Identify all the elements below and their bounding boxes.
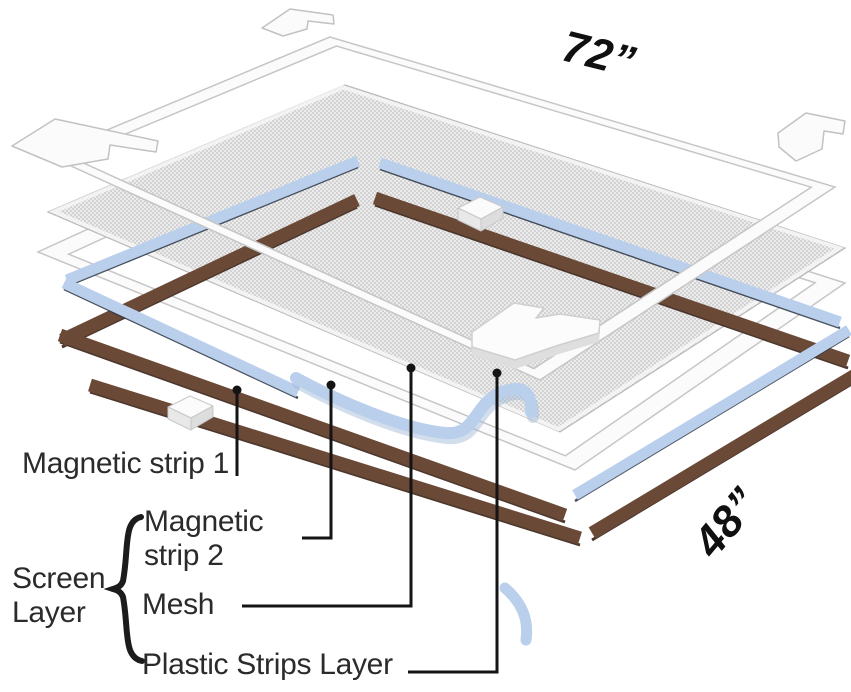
corner-connector-top xyxy=(262,9,334,36)
label-mesh: Mesh xyxy=(142,588,214,622)
label-magnetic-strip-1: Magnetic strip 1 xyxy=(22,447,229,481)
diagram-art xyxy=(0,0,851,692)
label-plastic-strips-layer: Plastic Strips Layer xyxy=(142,648,393,682)
exploded-screen-diagram: Magnetic strip 1 Magnetic strip 2 Screen… xyxy=(0,0,851,692)
label-screen-layer: Screen Layer xyxy=(12,562,126,630)
blue-ribbon-curl-lower xyxy=(505,588,527,640)
label-magnetic-strip-2: Magnetic strip 2 xyxy=(144,505,296,573)
corner-connector-right xyxy=(778,113,845,161)
